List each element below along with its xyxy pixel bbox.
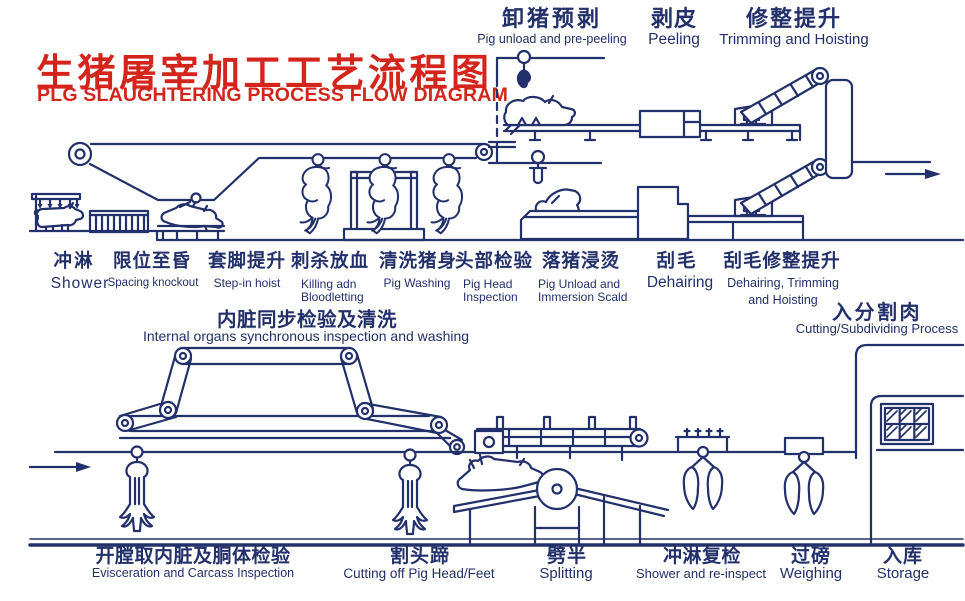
hanging-pig (432, 154, 463, 233)
trimming-hoist-upper (735, 68, 828, 125)
half-carcasses (785, 452, 823, 514)
dehairing-machine (638, 187, 688, 239)
entry-arrow-icon (76, 462, 91, 472)
flow-diagram-page: 生猪屠宰加工工艺流程图 PLG SLAUGHTERING PROCESS FLO… (0, 0, 965, 601)
standing-pig (35, 203, 83, 231)
pig-on-peeling-conveyor (504, 96, 575, 125)
flow-arrow-right-icon (925, 169, 941, 179)
lower-carcass-rail (30, 438, 856, 472)
dehairing-platform (688, 216, 803, 239)
splitting-conveyor-beam (475, 417, 648, 460)
process-flow-line-art (0, 0, 965, 601)
scald-tank (521, 211, 641, 239)
upper-overhead-rail (69, 143, 492, 200)
stunning-restrainer (90, 211, 148, 232)
hanging-pig (368, 154, 399, 233)
floor-upper (30, 231, 963, 240)
peeling-machine (640, 111, 700, 137)
pig-on-splitting-table (458, 455, 544, 490)
splitting-saw-station (454, 455, 668, 544)
cutting-room-wall-and-storage (856, 345, 963, 544)
storage-crates (881, 404, 933, 444)
bleeding-hanging-pigs (301, 154, 463, 240)
hanging-pig (301, 154, 332, 233)
shower-reinspect-station (676, 429, 729, 509)
trimming-hoist-lower (735, 159, 828, 216)
shower-station (32, 194, 83, 231)
floor-lower (30, 539, 963, 545)
carcass-evisceration (120, 447, 154, 532)
weighing-station (785, 438, 823, 514)
carcass-head-feet-cutting (393, 450, 427, 535)
half-carcasses (684, 447, 722, 509)
transfer-panel (826, 80, 941, 179)
saw-blade-icon (537, 469, 577, 509)
